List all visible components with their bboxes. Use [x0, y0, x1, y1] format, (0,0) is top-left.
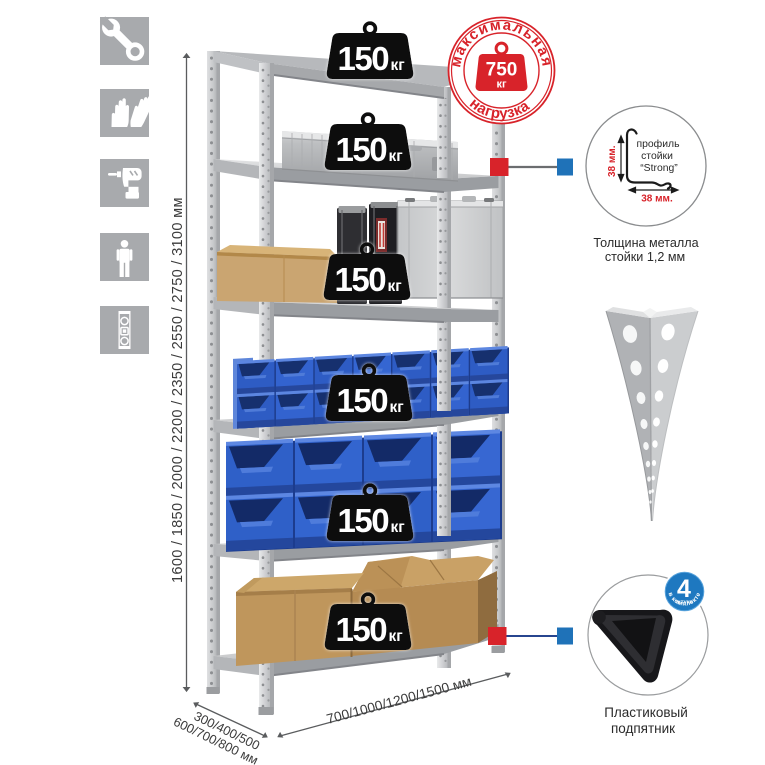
- svg-text:“Strong”: “Strong”: [640, 163, 678, 174]
- svg-text:Толщина металла: Толщина металла: [593, 236, 698, 250]
- svg-text:750: 750: [486, 60, 518, 81]
- svg-text:стойки 1,2 мм: стойки 1,2 мм: [605, 250, 685, 264]
- svg-text:Пластиковый: Пластиковый: [604, 705, 688, 720]
- svg-text:подпятник: подпятник: [611, 721, 675, 736]
- svg-text:38 мм.: 38 мм.: [607, 145, 618, 177]
- svg-text:профиль: профиль: [636, 138, 679, 150]
- svg-text:38 мм.: 38 мм.: [641, 194, 673, 205]
- svg-text:стойки: стойки: [641, 151, 673, 162]
- svg-text:1600 / 1850 / 2000 / 2200 / 23: 1600 / 1850 / 2000 / 2200 / 2350 / 2550 …: [170, 197, 186, 583]
- svg-text:кг: кг: [496, 79, 507, 91]
